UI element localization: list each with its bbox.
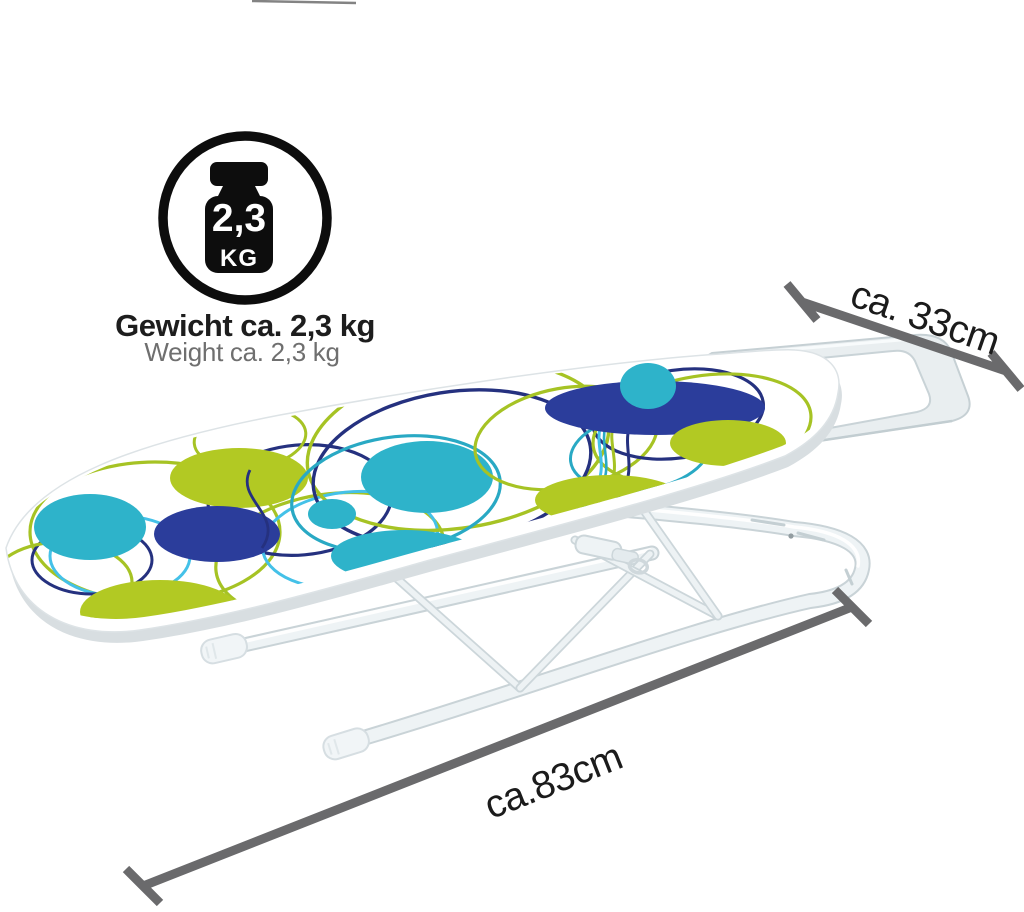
- cover-circle: [170, 448, 308, 508]
- cover-circle: [34, 494, 146, 560]
- cover-circle: [361, 441, 493, 513]
- product-photo-ironing-board: 2,3 KG Gewicht ca. 2,3 kg Weight ca. 2,3…: [0, 0, 1024, 912]
- rivet-hole: [788, 533, 793, 538]
- weight-unit: KG: [220, 245, 258, 272]
- weight-icon-knob: [210, 162, 268, 186]
- foot-cap-front: [199, 632, 249, 666]
- product-illustration: 2,3 KG Gewicht ca. 2,3 kg Weight ca. 2,3…: [0, 0, 1024, 912]
- weight-icon-neck: [217, 184, 261, 198]
- cover-circle: [154, 506, 280, 562]
- cover-circle: [620, 363, 676, 409]
- weight-caption-en: Weight ca. 2,3 kg: [144, 337, 339, 367]
- weight-badge: 2,3 KG: [163, 136, 327, 300]
- weight-value: 2,3: [212, 197, 266, 240]
- foot-cap-rear: [321, 726, 372, 762]
- top-edge-artifact: [252, 1, 356, 3]
- cover-circle: [308, 499, 356, 529]
